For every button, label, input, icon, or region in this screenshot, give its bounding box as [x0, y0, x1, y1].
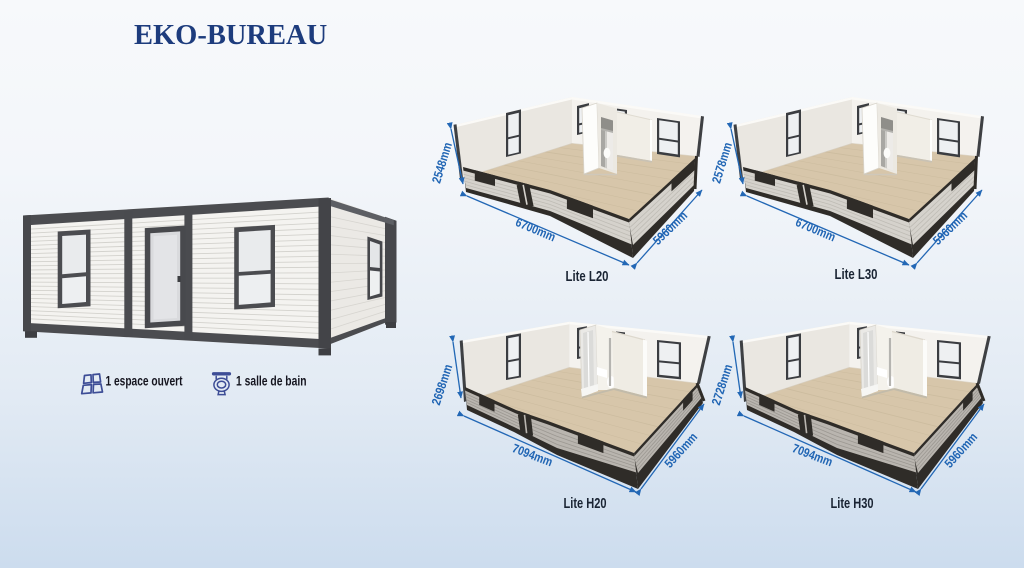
svg-text:Lite H30: Lite H30	[831, 495, 874, 512]
svg-text:2728mm: 2728mm	[709, 363, 735, 407]
svg-text:2578mm: 2578mm	[709, 141, 735, 185]
svg-text:2698mm: 2698mm	[429, 363, 455, 407]
svg-text:Lite L30: Lite L30	[835, 266, 878, 283]
svg-text:1 salle de bain: 1 salle de bain	[236, 373, 307, 389]
svg-text:Lite H20: Lite H20	[564, 495, 607, 512]
svg-text:Lite L20: Lite L20	[566, 268, 609, 285]
svg-text:6700mm: 6700mm	[513, 215, 557, 244]
svg-text:2548mm: 2548mm	[429, 141, 455, 185]
svg-text:6700mm: 6700mm	[793, 215, 837, 244]
svg-text:1 espace ouvert: 1 espace ouvert	[106, 373, 183, 389]
